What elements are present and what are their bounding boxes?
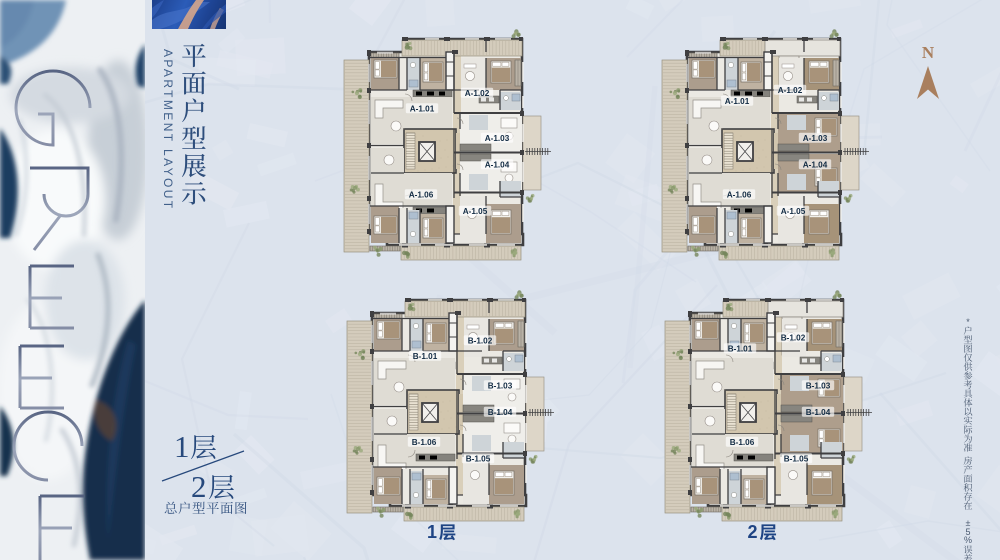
svg-text:B-1.02: B-1.02 bbox=[781, 333, 806, 342]
svg-text:B-1.04: B-1.04 bbox=[488, 408, 513, 417]
svg-text:2: 2 bbox=[748, 522, 758, 542]
svg-text:A-1.02: A-1.02 bbox=[778, 86, 803, 95]
svg-text:A-1.05: A-1.05 bbox=[781, 207, 806, 216]
svg-text:B-1.06: B-1.06 bbox=[730, 438, 755, 447]
svg-text:A-1.05: A-1.05 bbox=[463, 207, 488, 216]
svg-text:B-1.05: B-1.05 bbox=[784, 454, 809, 463]
svg-text:B-1.04: B-1.04 bbox=[806, 408, 831, 417]
svg-text:B-1.03: B-1.03 bbox=[488, 381, 513, 390]
svg-text:A-1.01: A-1.01 bbox=[725, 97, 750, 106]
svg-text:APARTMENT LAYOUT: APARTMENT LAYOUT bbox=[161, 49, 175, 211]
svg-text:N: N bbox=[922, 43, 935, 62]
svg-text:A-1.01: A-1.01 bbox=[410, 104, 435, 113]
svg-text:B-1.06: B-1.06 bbox=[412, 438, 437, 447]
svg-text:B-1.05: B-1.05 bbox=[466, 454, 491, 463]
svg-text:A-1.02: A-1.02 bbox=[465, 89, 490, 98]
svg-text:B-1.01: B-1.01 bbox=[413, 352, 438, 361]
svg-text:B-1.01: B-1.01 bbox=[728, 344, 753, 353]
svg-text:A-1.04: A-1.04 bbox=[803, 160, 828, 169]
svg-text:A-1.03: A-1.03 bbox=[803, 134, 828, 143]
svg-text:1: 1 bbox=[427, 522, 437, 542]
svg-text:1: 1 bbox=[174, 429, 190, 464]
svg-text:A-1.06: A-1.06 bbox=[727, 190, 752, 199]
svg-text:2: 2 bbox=[191, 469, 207, 504]
svg-text:B-1.02: B-1.02 bbox=[468, 336, 493, 345]
svg-text:*: * bbox=[966, 317, 970, 327]
svg-text:A-1.03: A-1.03 bbox=[485, 134, 510, 143]
svg-text:A-1.04: A-1.04 bbox=[485, 160, 510, 169]
svg-text:A-1.06: A-1.06 bbox=[409, 190, 434, 199]
svg-text:%: % bbox=[964, 535, 972, 545]
svg-text:B-1.03: B-1.03 bbox=[806, 381, 831, 390]
